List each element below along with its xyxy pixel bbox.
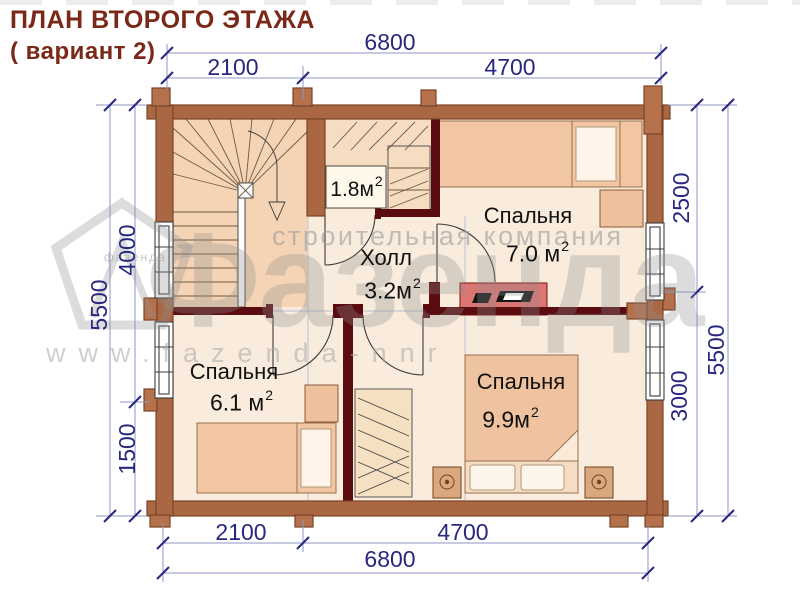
bedroom-top-area: 7.0 м2 [457, 240, 617, 268]
dim-top-right: 4700 [465, 54, 555, 81]
log-end [295, 515, 313, 527]
dim-bottom-left: 2100 [196, 519, 286, 546]
dim-right-lower: 3000 [666, 351, 692, 441]
bedroom-top-name: Спальня [448, 203, 608, 229]
window-left-upper [155, 222, 173, 298]
nightstand-right-bedroom-right [585, 467, 613, 498]
log-end [421, 90, 436, 106]
dim-left-upper: 4000 [114, 205, 140, 295]
page-subtitle: ( вариант 2) [10, 38, 155, 66]
log-end [663, 288, 675, 310]
bedroom-right-area: 9.9м2 [430, 406, 590, 434]
log-block [627, 303, 647, 319]
nightstand-right-bedroom-left [433, 467, 461, 498]
dim-top-left: 2100 [188, 54, 278, 81]
log-end [644, 86, 662, 134]
log-end [610, 515, 628, 527]
bedroom-left-area: 6.1 м2 [161, 389, 321, 417]
floor-plan-page: Фазенда строительная компания фазенда ww… [0, 0, 800, 600]
log-end [152, 88, 170, 106]
log-end [150, 515, 170, 527]
bedroom-left-name: Спальня [154, 359, 314, 385]
dim-left-lower: 1500 [114, 404, 140, 494]
dim-left-total: 5500 [86, 260, 112, 350]
top-edge-artifact [0, 0, 800, 5]
bedroom-right-name: Спальня [441, 369, 601, 395]
bed-top-bedroom [438, 121, 642, 187]
closet-area: 1.8м2 [276, 175, 436, 202]
dim-bottom-right: 4700 [418, 519, 508, 546]
dim-top-total: 6800 [345, 29, 435, 56]
hall-name: Холл [306, 245, 466, 271]
bed-left-bedroom [197, 423, 336, 493]
dim-right-upper: 2500 [668, 153, 694, 243]
hall-area: 3.2м2 [312, 277, 472, 305]
log-end [144, 298, 157, 320]
dim-right-total: 5500 [703, 305, 729, 395]
dim-bottom-total: 6800 [345, 546, 435, 573]
window-right-lower [646, 320, 664, 400]
page-title: ПЛАН ВТОРОГО ЭТАЖА [10, 6, 315, 35]
window-right-upper [646, 223, 664, 300]
wardrobe [355, 389, 412, 497]
